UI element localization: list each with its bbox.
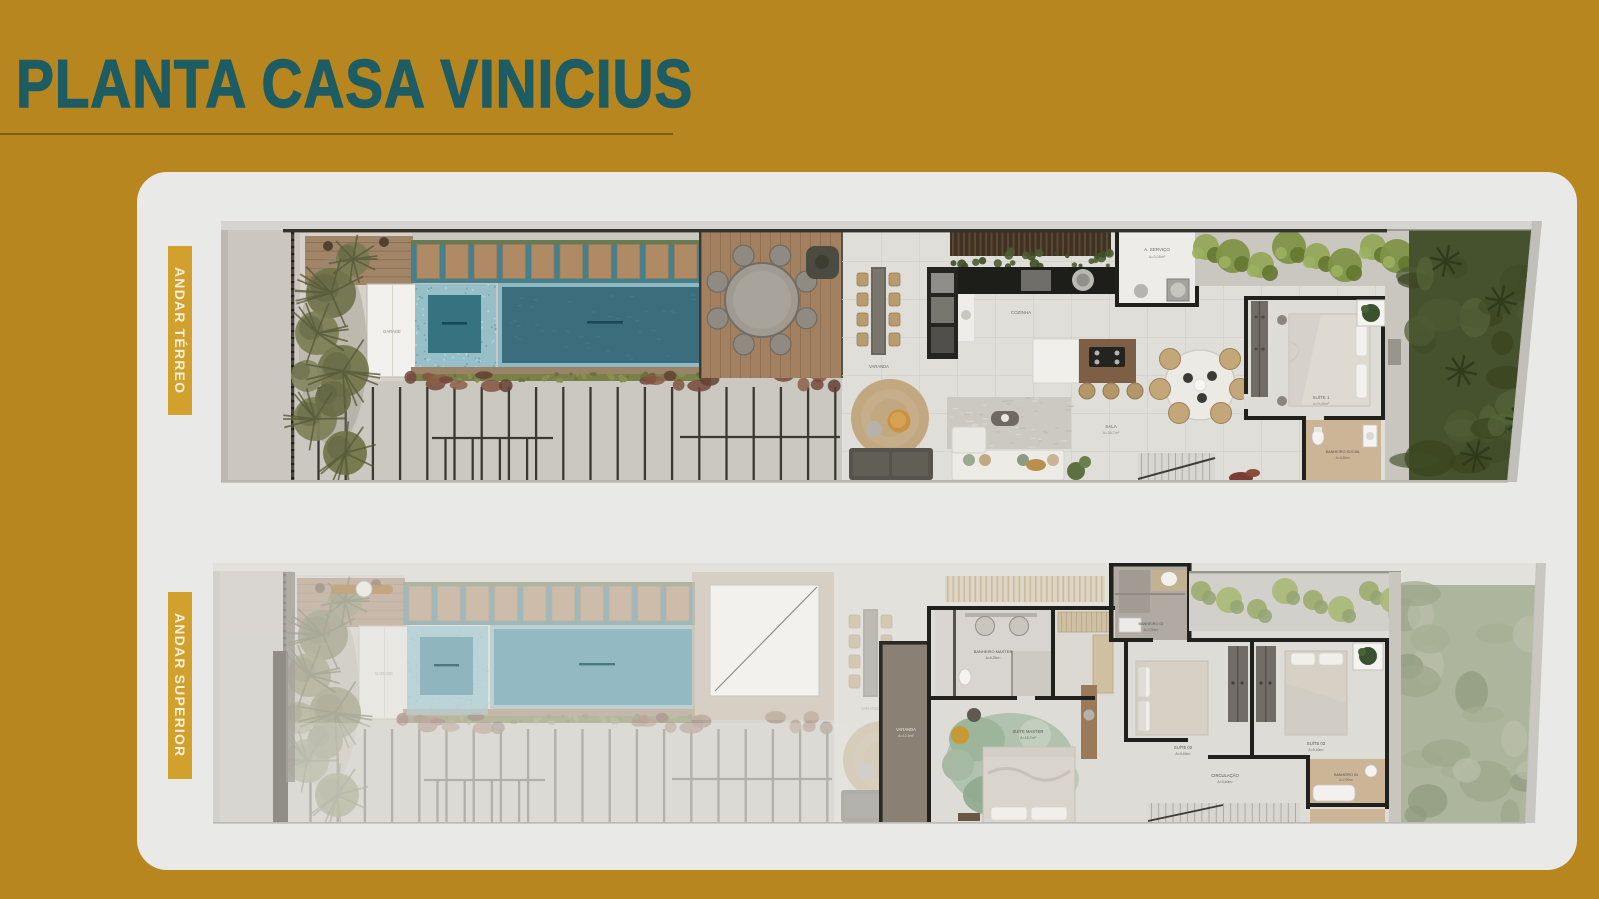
svg-text:SUÍTE MASTER: SUÍTE MASTER — [1013, 729, 1044, 734]
svg-text:SALA: SALA — [1105, 424, 1117, 429]
svg-text:A=3,05m²: A=3,05m² — [1149, 255, 1166, 259]
svg-text:A=26,7m²: A=26,7m² — [1103, 431, 1120, 435]
svg-text:SUÍTE 02: SUÍTE 02 — [1174, 745, 1193, 750]
svg-text:A=2,90m²: A=2,90m² — [1144, 628, 1160, 632]
svg-text:A=2,90m²: A=2,90m² — [1339, 778, 1353, 782]
svg-text:SUÍTE 1: SUÍTE 1 — [1312, 394, 1330, 400]
svg-text:CIRCULAÇÃO: CIRCULAÇÃO — [1211, 773, 1239, 778]
svg-text:A=3,80m²: A=3,80m² — [1336, 456, 1352, 460]
svg-text:A=6,25m²: A=6,25m² — [986, 656, 1002, 660]
svg-text:BANHEIRO 02: BANHEIRO 02 — [1138, 622, 1163, 626]
svg-text:VARANDA: VARANDA — [896, 727, 916, 732]
svg-text:A=12,9m²: A=12,9m² — [898, 734, 914, 738]
svg-text:BANHEIRO 03: BANHEIRO 03 — [1334, 773, 1358, 777]
svg-text:BANHEIRO SOCIAL: BANHEIRO SOCIAL — [1326, 450, 1361, 454]
svg-text:A=3,60m²: A=3,60m² — [1217, 780, 1233, 784]
svg-text:A. SERVIÇO: A. SERVIÇO — [1144, 247, 1170, 252]
svg-text:A=9,40m²: A=9,40m² — [1175, 752, 1191, 756]
svg-text:SUÍTE 03: SUÍTE 03 — [1307, 741, 1326, 746]
svg-text:COZINHA: COZINHA — [1011, 310, 1031, 315]
svg-text:BANHEIRO MASTER: BANHEIRO MASTER — [974, 649, 1013, 654]
svg-text:A=9,40m²: A=9,40m² — [1308, 748, 1324, 752]
svg-text:A=9,45m²: A=9,45m² — [1313, 402, 1330, 406]
svg-text:A=15,7m²: A=15,7m² — [1020, 736, 1036, 740]
